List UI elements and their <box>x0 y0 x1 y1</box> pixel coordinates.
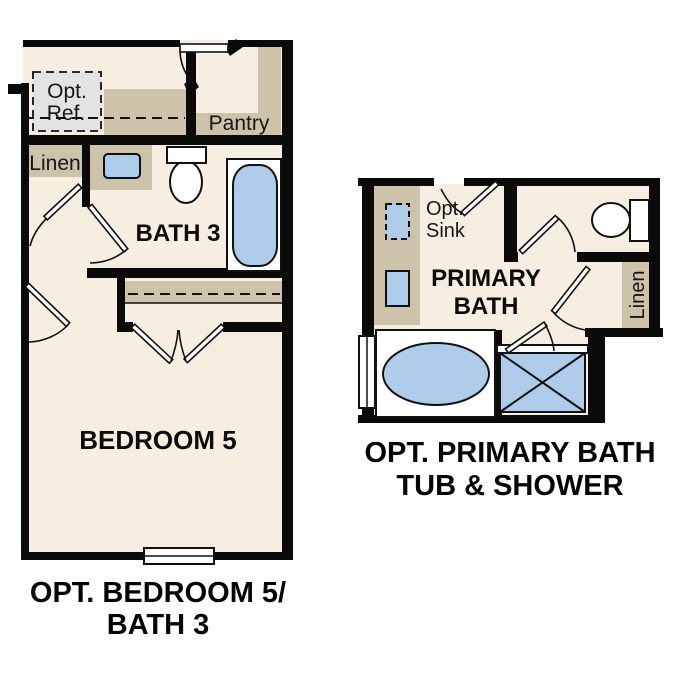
linen-label: Linen <box>627 271 649 320</box>
floor-plan-figure: Opt. Ref. Pantry Linen BATH 3 BEDROOM 5 … <box>0 0 687 687</box>
kitchen-counter <box>104 89 186 135</box>
primary-sink <box>386 271 409 306</box>
optional-sink <box>386 204 409 239</box>
bath3-label: BATH 3 <box>136 220 221 247</box>
bedroom-window <box>144 548 214 564</box>
toilet-tank <box>167 147 206 163</box>
right-plan: Opt. Sink PRIMARY BATH Linen OPT. PRIMAR… <box>358 178 663 502</box>
bedroom5-label: BEDROOM 5 <box>79 425 236 455</box>
left-caption-line2: BATH 3 <box>107 609 210 641</box>
pantry-door <box>180 44 228 52</box>
opt-ref-label-line1: Opt. <box>47 80 87 103</box>
opt-sink-label-line2: Sink <box>426 220 466 242</box>
toilet-bowl <box>170 161 202 203</box>
right-caption-line1: OPT. PRIMARY BATH <box>364 437 655 469</box>
toilet-bowl <box>592 203 630 237</box>
left-caption-line1: OPT. BEDROOM 5/ <box>30 577 286 609</box>
floor-plan-canvas: Opt. Ref. Pantry Linen BATH 3 BEDROOM 5 … <box>0 0 687 687</box>
tub-window <box>359 336 375 408</box>
bath3-sink <box>104 154 140 178</box>
shower <box>500 353 585 412</box>
toilet-tank <box>630 200 649 241</box>
left-plan: Opt. Ref. Pantry Linen BATH 3 BEDROOM 5 … <box>8 39 293 641</box>
right-caption-line2: TUB & SHOWER <box>396 470 623 502</box>
primary-bath-label-line1: PRIMARY <box>431 265 541 292</box>
opt-ref-label-line2: Ref. <box>47 102 86 125</box>
pantry-label: Pantry <box>209 112 270 135</box>
primary-bath-label-line2: BATH <box>454 293 519 320</box>
closet-shelf <box>125 281 283 303</box>
linen-label: Linen <box>29 152 80 175</box>
opt-sink-label-line1: Opt. <box>426 198 464 220</box>
bathtub <box>233 165 277 266</box>
pantry-floor <box>196 47 258 113</box>
bathtub-oval <box>383 343 489 405</box>
